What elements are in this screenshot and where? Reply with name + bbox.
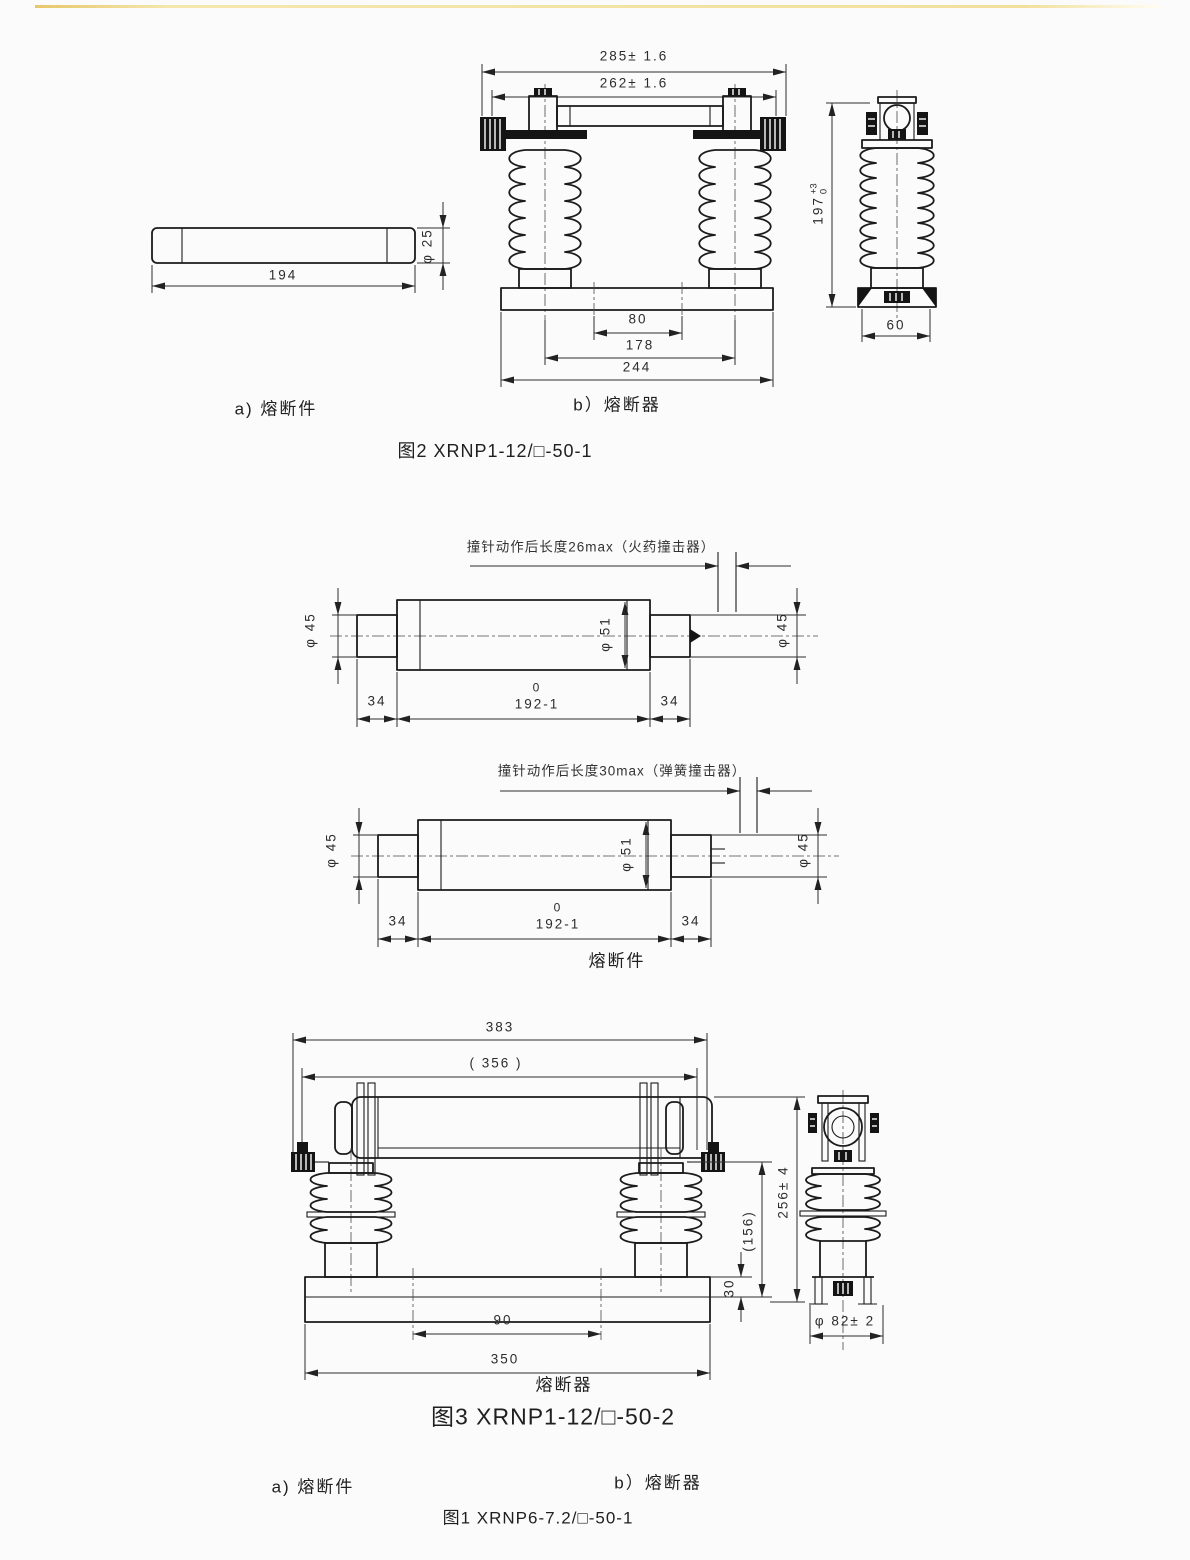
links-section-label: 熔断件 bbox=[589, 953, 646, 972]
link1-cap-right: 34 bbox=[660, 695, 679, 710]
fig2-side-width: 60 bbox=[886, 319, 905, 334]
document-page: 285± 1.6 262± 1.6 80 178 244 194 φ 25 19… bbox=[0, 0, 1190, 1560]
link2-cap-left: 34 bbox=[388, 915, 407, 930]
fig2-side-height-tol-lower: 0 bbox=[819, 183, 829, 194]
fig2-dim-overall: 285± 1.6 bbox=[600, 50, 668, 65]
fig3-assembly-front-drawing bbox=[291, 1033, 805, 1380]
fig2-dim-hole-span: 80 bbox=[628, 313, 647, 328]
link2-dia-left: φ 45 bbox=[325, 832, 340, 868]
fig2-dim-center-span: 178 bbox=[626, 339, 655, 354]
fig2-side-height-value: 197 bbox=[812, 196, 827, 225]
fig3-dim-base: 350 bbox=[491, 1353, 520, 1368]
fig2-caption: 图2 XRNP1-12/□-50-1 bbox=[398, 442, 593, 462]
link2-annotation: 撞针动作后长度30max（弹簧撞击器） bbox=[498, 765, 747, 780]
fig2-element-length: 194 bbox=[269, 269, 298, 284]
link1-dia-right: φ 45 bbox=[776, 612, 791, 648]
fig3-label: 熔断器 bbox=[536, 1377, 593, 1396]
link1-body-length: 192-1 bbox=[515, 698, 560, 713]
fig3-dim-height: 256± 4 bbox=[777, 1165, 792, 1218]
fig2-side-height: 197 +3 0 bbox=[810, 183, 829, 224]
fig1-label-a: a) 熔断件 bbox=[272, 1479, 355, 1498]
fig1-caption: 图1 XRNP6-7.2/□-50-1 bbox=[443, 1510, 634, 1529]
fig2-fuse-element-drawing bbox=[152, 202, 450, 293]
link1-cap-left: 34 bbox=[367, 695, 386, 710]
link2-dia-body: φ 51 bbox=[620, 836, 635, 872]
fig3-side-view-drawing bbox=[800, 1090, 886, 1350]
fig2-label-b: b）熔断器 bbox=[573, 397, 660, 416]
fig3-dim-plate: 30 bbox=[723, 1278, 738, 1297]
fig2-assembly-side-drawing bbox=[826, 90, 936, 342]
link1-dia-left: φ 45 bbox=[304, 612, 319, 648]
link2-body-length: 192-1 bbox=[536, 918, 581, 933]
link2-cap-right: 34 bbox=[681, 915, 700, 930]
drawing-canvas bbox=[0, 0, 1190, 1560]
fig3-dim-holes: 90 bbox=[493, 1314, 512, 1329]
fig3-caption: 图3 XRNP1-12/□-50-2 bbox=[431, 1404, 675, 1429]
link2-dia-right: φ 45 bbox=[797, 832, 812, 868]
link2-body-tol-upper: 0 bbox=[554, 901, 563, 914]
fig1-label-b: b）熔断器 bbox=[614, 1475, 701, 1494]
link1-dia-body: φ 51 bbox=[599, 616, 614, 652]
fig2-element-diameter: φ 25 bbox=[421, 228, 436, 264]
fig2-dim-base: 244 bbox=[623, 361, 652, 376]
fuse-link2-drawing bbox=[351, 777, 839, 947]
fig2-dim-inner: 262± 1.6 bbox=[600, 77, 668, 92]
fig2-label-a: a) 熔断件 bbox=[235, 401, 318, 420]
fig3-dim-overall: 383 bbox=[486, 1021, 515, 1036]
fig3-dim-diameter: φ 82± 2 bbox=[815, 1315, 875, 1330]
link1-annotation: 撞针动作后长度26max（火药撞击器） bbox=[467, 541, 716, 556]
fig3-dim-insulator: (156) bbox=[742, 1210, 757, 1252]
fig3-dim-inner: ( 356 ) bbox=[469, 1057, 522, 1072]
fuse-link1-drawing bbox=[330, 552, 818, 727]
link1-body-tol-upper: 0 bbox=[533, 681, 542, 694]
